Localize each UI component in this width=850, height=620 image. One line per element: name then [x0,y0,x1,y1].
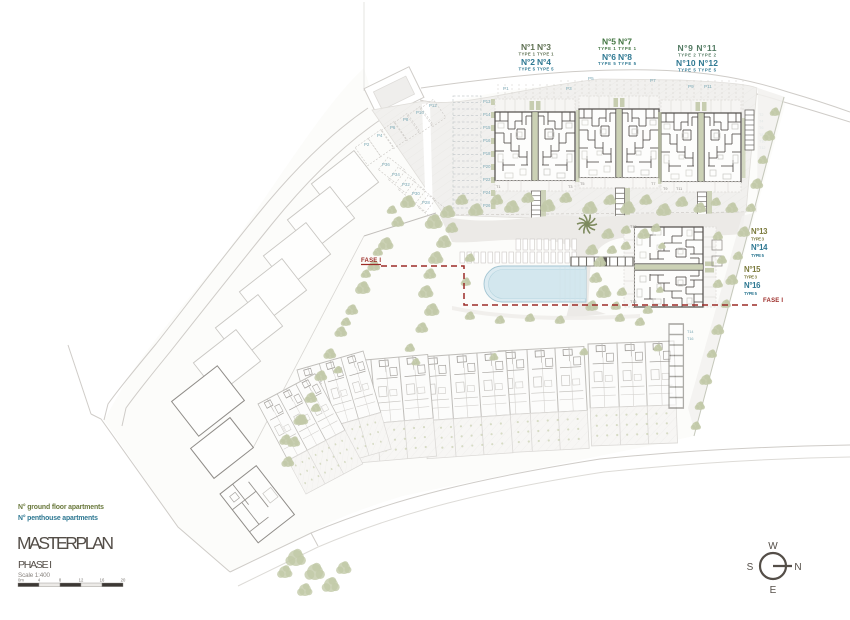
svg-text:P30: P30 [412,191,420,196]
svg-text:20: 20 [121,578,126,583]
svg-text:TYPE 5 TYPE 5: TYPE 5 TYPE 5 [519,67,555,72]
svg-text:W: W [768,541,778,552]
svg-text:N°10 N°12: N°10 N°12 [676,58,718,68]
svg-text:N° ground floor apartments: N° ground floor apartments [18,503,104,511]
svg-text:TYPE 3: TYPE 3 [744,275,758,280]
svg-text:TYPE 5 TYPE 5: TYPE 5 TYPE 5 [598,61,637,66]
svg-text:T5: T5 [580,182,584,186]
svg-text:P9: P9 [688,84,694,89]
svg-text:N°2 N°4: N°2 N°4 [521,57,551,67]
svg-text:P34: P34 [392,172,400,177]
svg-text:FASE I: FASE I [361,258,381,264]
svg-text:P28: P28 [422,200,430,205]
svg-text:T13: T13 [630,225,637,229]
svg-text:P11: P11 [704,84,712,89]
svg-text:T14: T14 [687,330,694,334]
svg-text:N° penthouse apartments: N° penthouse apartments [18,514,98,522]
svg-text:P1: P1 [503,86,509,91]
svg-text:PHASE I: PHASE I [18,559,52,571]
svg-text:TYPE 1 TYPE 1: TYPE 1 TYPE 1 [598,46,637,51]
svg-text:N°15: N°15 [744,265,761,274]
svg-text:P5: P5 [588,76,594,81]
svg-text:TYPE 3: TYPE 3 [751,237,765,242]
svg-text:TYPE 5: TYPE 5 [751,253,765,258]
svg-text:P4: P4 [377,133,383,138]
svg-text:P6: P6 [390,125,396,130]
svg-text:FASE I: FASE I [763,298,783,304]
svg-text:TYPE 2 TYPE 2: TYPE 2 TYPE 2 [678,53,717,58]
svg-text:P10: P10 [416,110,424,115]
svg-text:P36: P36 [382,162,390,167]
svg-text:N°13: N°13 [751,227,768,236]
svg-text:P18: P18 [483,151,491,156]
svg-text:T15: T15 [630,300,637,304]
svg-text:12: 12 [79,578,84,583]
svg-text:E: E [770,585,777,596]
svg-text:T3: T3 [568,185,572,189]
svg-text:TYPE 5: TYPE 5 [744,291,758,296]
svg-text:P15: P15 [483,125,491,130]
svg-text:TYPE 1 TYPE 1: TYPE 1 TYPE 1 [519,52,555,57]
svg-text:N°9 N°11: N°9 N°11 [678,43,717,53]
svg-text:P24: P24 [483,190,491,195]
svg-text:P22: P22 [483,177,491,182]
svg-text:P13: P13 [483,99,491,104]
svg-text:P7: P7 [650,78,656,83]
svg-text:T16: T16 [687,337,694,341]
svg-text:T9: T9 [663,187,667,191]
svg-text:T1: T1 [496,185,500,189]
svg-text:P20: P20 [483,164,491,169]
svg-text:16: 16 [100,578,105,583]
svg-text:N: N [794,562,801,573]
svg-text:P26: P26 [483,203,491,208]
svg-text:N°16: N°16 [744,281,761,290]
svg-text:P32: P32 [402,182,410,187]
svg-text:P16: P16 [483,138,491,143]
svg-text:MASTERPLAN: MASTERPLAN [17,533,114,553]
svg-text:P12: P12 [429,103,437,108]
svg-text:N°5 N°7: N°5 N°7 [602,37,632,47]
svg-text:P14: P14 [483,112,491,117]
svg-text:T7: T7 [651,182,655,186]
svg-text:0m: 0m [18,578,24,583]
svg-text:T11: T11 [676,187,682,191]
svg-text:N°1 N°3: N°1 N°3 [521,42,551,52]
svg-text:P3: P3 [566,86,572,91]
svg-text:N°14: N°14 [751,243,768,252]
svg-text:TYPE 5 TYPE 5: TYPE 5 TYPE 5 [678,68,717,73]
svg-text:P8: P8 [403,117,409,122]
svg-text:S: S [747,562,754,573]
svg-text:P2: P2 [364,142,370,147]
